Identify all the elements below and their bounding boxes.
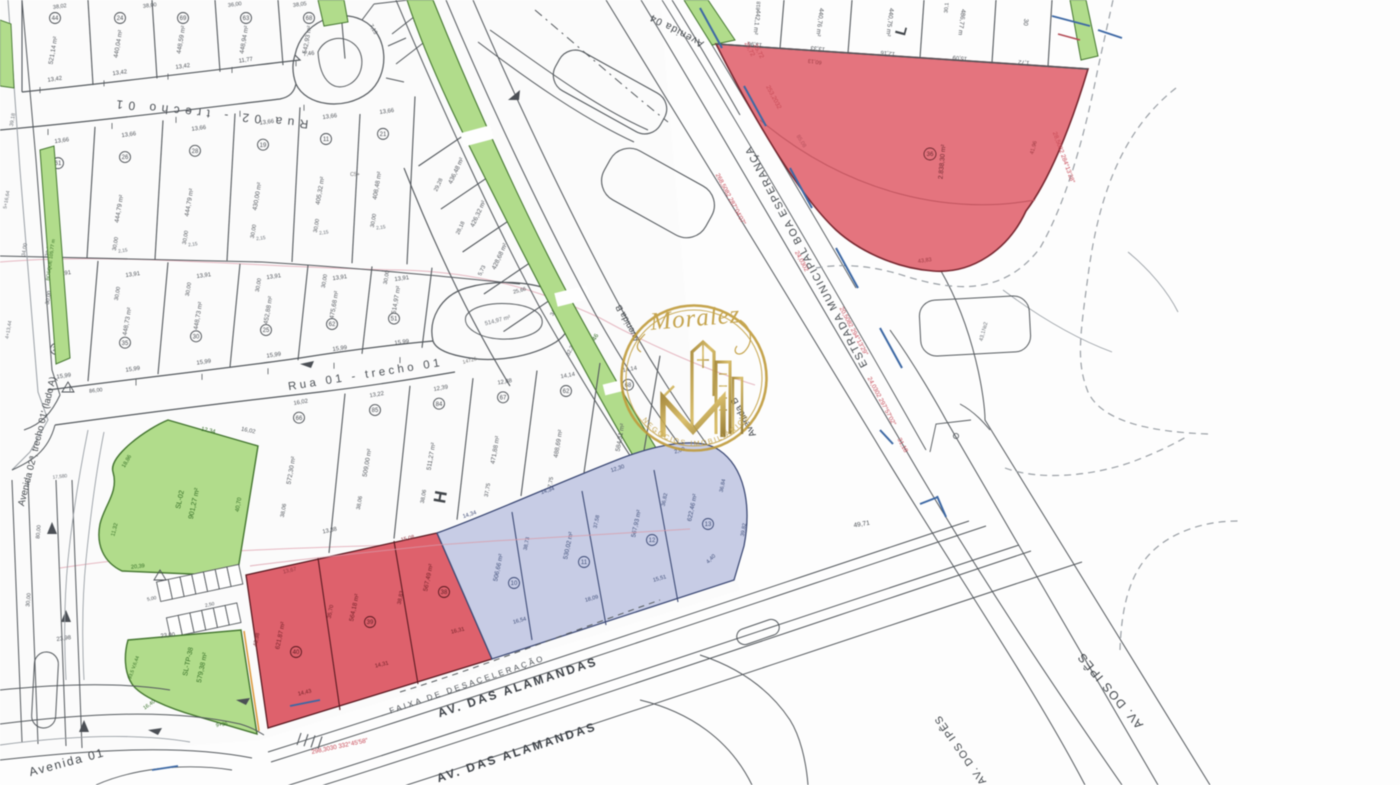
- svg-text:12: 12: [649, 538, 656, 544]
- svg-text:44: 44: [52, 16, 59, 22]
- svg-text:25: 25: [263, 328, 270, 334]
- svg-text:26: 26: [122, 155, 129, 161]
- svg-text:63: 63: [243, 16, 250, 22]
- svg-text:62: 62: [329, 322, 336, 328]
- svg-text:69: 69: [180, 16, 187, 22]
- svg-text:68: 68: [306, 16, 313, 22]
- svg-text:62: 62: [563, 389, 570, 395]
- svg-text:30,1: 30,1: [944, 2, 951, 13]
- svg-text:13: 13: [705, 522, 712, 528]
- svg-text:40: 40: [293, 650, 300, 656]
- svg-text:11: 11: [323, 137, 330, 143]
- svg-text:30: 30: [193, 334, 200, 340]
- svg-text:1,72: 1,72: [1018, 58, 1030, 65]
- svg-text:24: 24: [117, 16, 124, 22]
- svg-text:C5+: C5+: [350, 172, 360, 178]
- svg-text:818: 818: [756, 1, 763, 10]
- svg-text:10: 10: [511, 581, 518, 587]
- svg-text:30,00: 30,00: [25, 593, 32, 607]
- svg-text:28: 28: [192, 149, 199, 155]
- svg-text:30: 30: [1022, 18, 1030, 26]
- svg-text:51: 51: [391, 317, 398, 323]
- svg-text:67: 67: [500, 395, 507, 401]
- svg-text:66: 66: [296, 416, 303, 422]
- svg-text:39: 39: [367, 620, 374, 626]
- svg-text:38: 38: [441, 590, 448, 596]
- svg-text:19: 19: [260, 143, 267, 149]
- svg-text:21: 21: [380, 132, 387, 138]
- svg-text:36: 36: [927, 151, 934, 158]
- svg-text:11: 11: [581, 560, 588, 566]
- svg-text:35: 35: [122, 341, 129, 347]
- svg-text:85: 85: [372, 408, 379, 414]
- svg-text:80,00: 80,00: [35, 525, 42, 539]
- svg-text:84: 84: [436, 402, 443, 408]
